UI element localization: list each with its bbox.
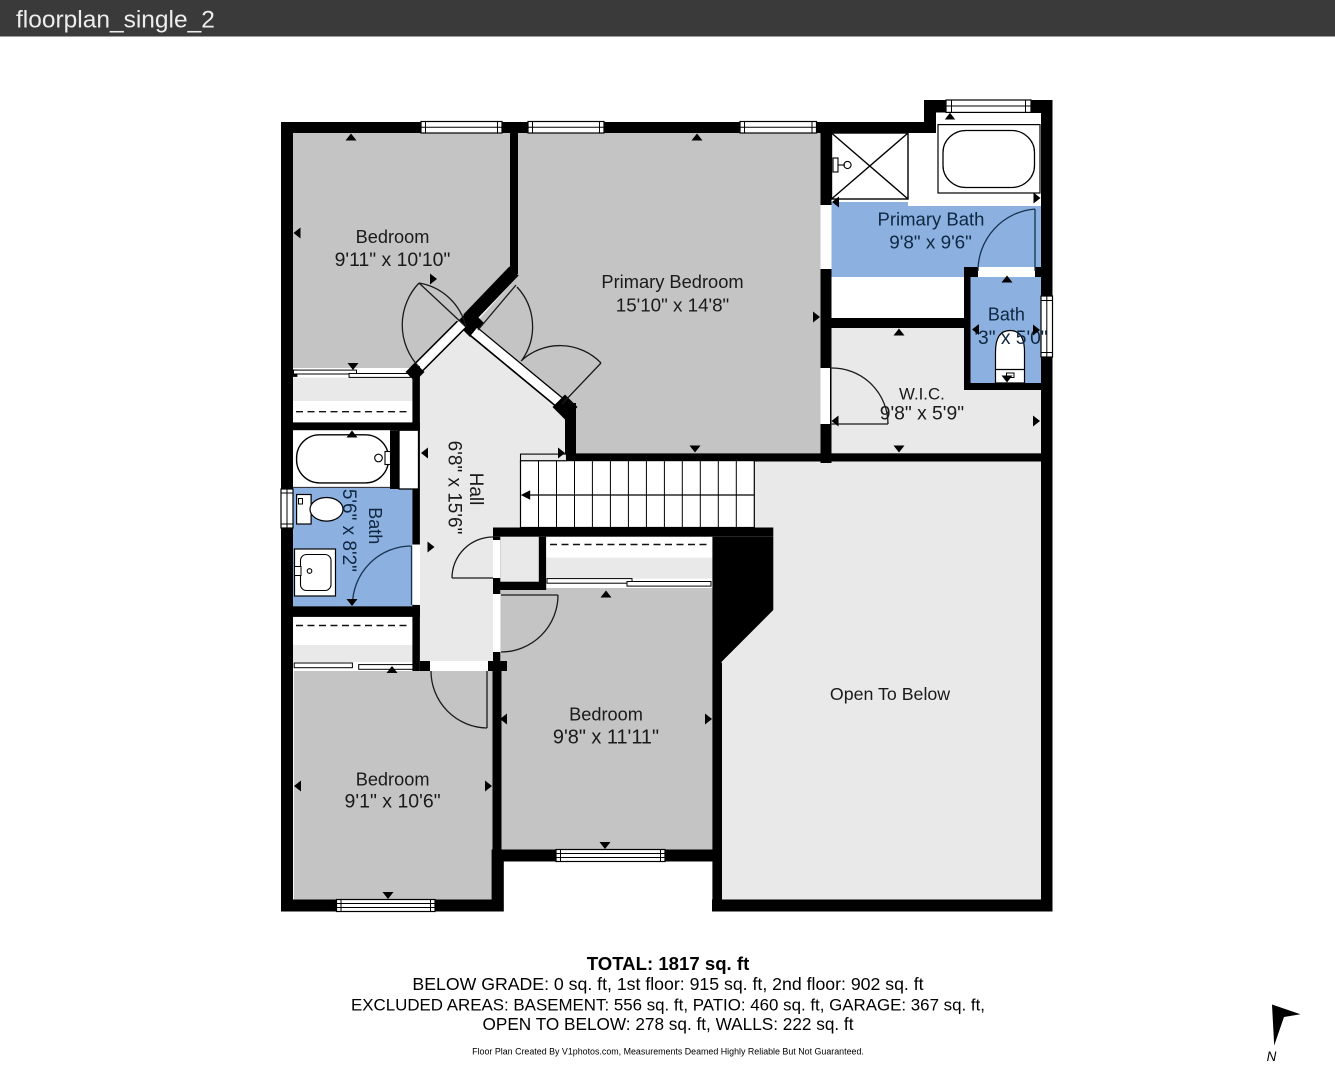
svg-text:6'8" x 15'6": 6'8" x 15'6" [443,441,464,535]
svg-text:15'10" x 14'8": 15'10" x 14'8" [616,294,729,315]
svg-text:TOTAL: 1817 sq. ft: TOTAL: 1817 sq. ft [587,953,750,974]
svg-text:OPEN TO BELOW: 278 sq. ft, WAL: OPEN TO BELOW: 278 sq. ft, WALLS: 222 sq… [483,1014,854,1034]
svg-text:Open To Below: Open To Below [830,684,950,704]
svg-text:Bath: Bath [988,304,1025,324]
svg-text:EXCLUDED AREAS: BASEMENT: 556: EXCLUDED AREAS: BASEMENT: 556 sq. ft, PA… [351,995,985,1014]
svg-text:Bedroom: Bedroom [356,770,430,790]
svg-text:Primary Bedroom: Primary Bedroom [601,271,743,292]
svg-text:BELOW GRADE: 0 sq. ft, 1st flo: BELOW GRADE: 0 sq. ft, 1st floor: 915 sq… [412,974,923,994]
svg-text:Bath: Bath [365,507,385,544]
svg-text:Bedroom: Bedroom [356,227,430,247]
svg-text:Hall: Hall [465,473,486,506]
svg-text:5'6" x 8'2": 5'6" x 8'2" [338,489,359,572]
svg-text:Primary Bath: Primary Bath [878,208,985,229]
svg-text:9'8" x 5'9": 9'8" x 5'9" [880,404,964,425]
svg-text:N: N [1267,1049,1277,1064]
svg-text:9'1" x 10'6": 9'1" x 10'6" [345,791,441,813]
svg-text:9'11" x 10'10": 9'11" x 10'10" [335,249,451,271]
svg-text:9'8" x 9'6": 9'8" x 9'6" [889,233,972,254]
svg-text:W.I.C.: W.I.C. [899,384,945,403]
svg-text:9'8" x 11'11": 9'8" x 11'11" [553,727,659,749]
svg-text:Bedroom: Bedroom [569,705,643,725]
svg-text:floorplan_single_2: floorplan_single_2 [16,7,215,34]
svg-text:Floor Plan Created By V1photos: Floor Plan Created By V1photos.com, Meas… [472,1047,864,1057]
